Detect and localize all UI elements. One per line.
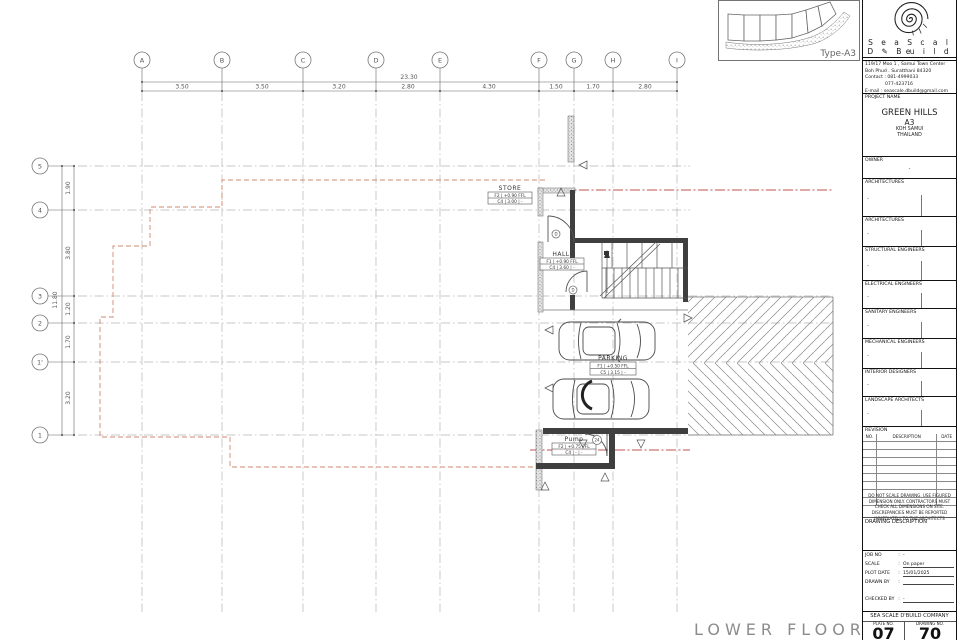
section-label: ELECTRICAL ENGINEERS [863,281,956,287]
project-location1: KOH SAMUI [863,127,956,132]
key-plan-highlight-unit [760,15,776,41]
footer-company: SEA SCALE D'BUILD COMPANY [863,613,956,619]
room-tag: C4 | 3.00 | - [497,199,523,205]
grid-row-label: 5 [38,163,42,171]
rev-cell [877,474,937,482]
grid-col-label: E [438,57,442,65]
key-plan: Type-A3 [719,1,860,61]
project-type: A3 [863,118,956,127]
plate-drawing-block: PLATE NO. 07 DRAWING NO. 70 [863,621,956,640]
section-structural: STRUCTURAL ENGINEERS - [863,246,956,281]
grid-col-label: B [220,57,224,65]
section-architectures-1: ARCHITECTURES - [863,178,956,217]
company-name-line2: D ✎ B u i l d [863,47,956,56]
room-tag: C4 | - | - [565,450,583,456]
owner-value: - [863,166,956,172]
project-name: GREEN HILLS [863,108,956,118]
car-bottom [553,379,649,419]
section-mechanical: MECHANICAL ENGINEERS - [863,338,956,369]
rev-col-no: NO. [863,434,877,442]
dim-left: 1.90 [65,181,72,195]
rev-cell [937,482,956,490]
project-location2: THAILAND [863,133,956,138]
meta-label: CHECKED BY [865,597,895,603]
door-tag: D [554,232,557,237]
section-electrical: ELECTRICAL ENGINEERS - [863,280,956,309]
meta-label: PLOT DATE [865,571,895,577]
meta-label: DRAWN BY [865,580,895,585]
meta-value: - [903,553,954,558]
grid-col-label: H [611,57,616,65]
rev-cell [863,482,877,490]
room-name-store: STORE [499,185,522,192]
meta-drawn-by: DRAWN BY : [865,580,954,585]
rev-cell [863,466,877,474]
rev-cell [937,458,956,466]
dim-left: 1.70 [65,335,72,349]
rev-cell [863,450,877,458]
room-tag: F2 | +0.90 FFL [494,193,526,199]
meta-plot-date: PLOT DATE : 15/01/2025 [865,571,954,577]
dim-top: 2.80 [638,84,652,91]
pump-tag: 24 [594,438,600,443]
rev-cell [863,442,877,450]
driveway-hatch [688,297,833,435]
door-tag: D [571,288,574,293]
section-interior: INTERIOR DESIGNERS - [863,368,956,397]
divider [863,550,956,551]
room-tag: C5 | 3.15 | - [600,370,626,376]
meta-value: - [903,597,954,603]
drawing-no-cell: DRAWING NO. 70 [904,621,956,640]
phone-line: 077-423716 [865,82,954,89]
rev-cell [863,474,877,482]
plate-no-cell: PLATE NO. 07 [863,621,904,640]
company-address: 119/17 Moo 1 , Samui Town Center Boh Phu… [863,62,956,95]
rev-cell [937,474,956,482]
dim-left: 3.80 [65,246,72,260]
drawing-description-label: DRAWING DESCRIPTION [863,518,956,525]
room-tag: F1 | +0.90 FFL [546,259,578,265]
room-tag: F2 | +0.75 FFL [558,444,590,450]
section-landscape: LANDSCAPE ARCHITECTS - [863,396,956,427]
grid-row-label: 1 [38,432,42,440]
room-name-parking: PARKING [598,355,628,362]
grid-col-label: I [676,57,678,65]
rev-cell [877,466,937,474]
dim-top: 3.50 [175,84,189,91]
floor-plan-drawing: 23.30 3.50 3.50 3.20 2.80 4.30 1.50 1.70… [0,0,862,640]
project-name-label: PROJECT NAME [863,94,956,100]
grid-row-label: 3 [38,293,42,301]
walls [536,116,688,490]
meta-value: 15/01/2025 [903,571,954,577]
dim-top: 1.50 [549,84,563,91]
plate-no-value: 07 [863,626,904,640]
room-name-hall: HALL [552,251,569,258]
top-dimensions: 23.30 3.50 3.50 3.20 2.80 4.30 1.50 1.70… [141,74,678,92]
contact-line: Contact : 081-4999033 [865,75,954,82]
drawing-no-value: 70 [904,626,956,640]
meta-value [903,580,954,585]
grid-col-label: F [537,57,541,65]
rev-cell [863,458,877,466]
dim-top: 3.50 [255,84,269,91]
section-label: STRUCTURAL ENGINEERS [863,247,956,253]
left-dimensions: 11.80 1.90 3.80 1.20 1.70 3.20 [52,165,75,436]
grid-row-label: 2 [38,320,42,328]
dim-top: 4.30 [482,84,496,91]
section-label: MECHANICAL ENGINEERS [863,339,956,345]
divider [863,611,956,612]
setback-line [100,180,545,467]
dim-left: 1.20 [65,302,72,316]
room-tag: F1 | +0.50 FFL [597,363,629,369]
divider [863,57,956,61]
rev-col-date: DATE [937,434,956,442]
address-line1: 119/17 Moo 1 , Samui Town Center [865,62,954,69]
section-label: INTERIOR DESIGNERS [863,369,956,375]
rev-cell [877,450,937,458]
meta-label: SCALE [865,562,895,568]
dim-top: 3.20 [332,84,346,91]
rev-cell [877,458,937,466]
rev-cell [877,442,937,450]
dim-total-left: 11.80 [52,291,59,308]
section-architectures-2: ARCHITECTURES - [863,216,956,247]
section-label: LANDSCAPE ARCHITECTS [863,397,956,403]
grid-col-label: G [571,57,576,65]
rev-cell [937,450,956,458]
title-block: S e a S c a l e D ✎ B u i l d 119/17 Moo… [862,0,957,640]
grid-col-label: C [301,57,306,65]
dim-top: 2.80 [401,84,415,91]
rev-cell [937,466,956,474]
rev-col-desc: DESCRIPTION [877,434,937,442]
room-name-pump: Pump [565,436,584,443]
revision-label: REVISION [863,427,956,433]
owner-label: OWNER [863,157,956,163]
room-labels: STORE F2 | +0.90 FFL C4 | 3.00 | - HALL … [488,185,636,456]
section-sanitary: SANITARY ENGINEERS - [863,308,956,339]
rev-cell [877,482,937,490]
section-label: ARCHITECTURES [863,179,956,185]
meta-scale: SCALE : On paper [865,562,954,568]
dim-total-top: 23.30 [400,74,417,81]
meta-value: On paper [903,562,954,568]
grid-row-label: 1' [37,359,43,367]
dim-top: 1.70 [586,84,600,91]
meta-label: JOB NO [865,553,895,558]
dim-left: 3.20 [65,391,72,405]
room-tag: C4 | 3.60 | - [549,265,575,271]
meta-job: JOB NO : - [865,553,954,558]
company-logo-spiral [863,0,956,38]
rev-cell [937,442,956,450]
grid-col-label: A [140,57,145,65]
meta-checked-by: CHECKED BY : - [865,597,954,603]
grid-row-label: 4 [38,207,42,215]
section-label: ARCHITECTURES [863,217,956,223]
key-plan-type-label: Type-A3 [819,49,856,59]
grid-col-label: D [373,57,378,65]
section-label: SANITARY ENGINEERS [863,309,956,315]
